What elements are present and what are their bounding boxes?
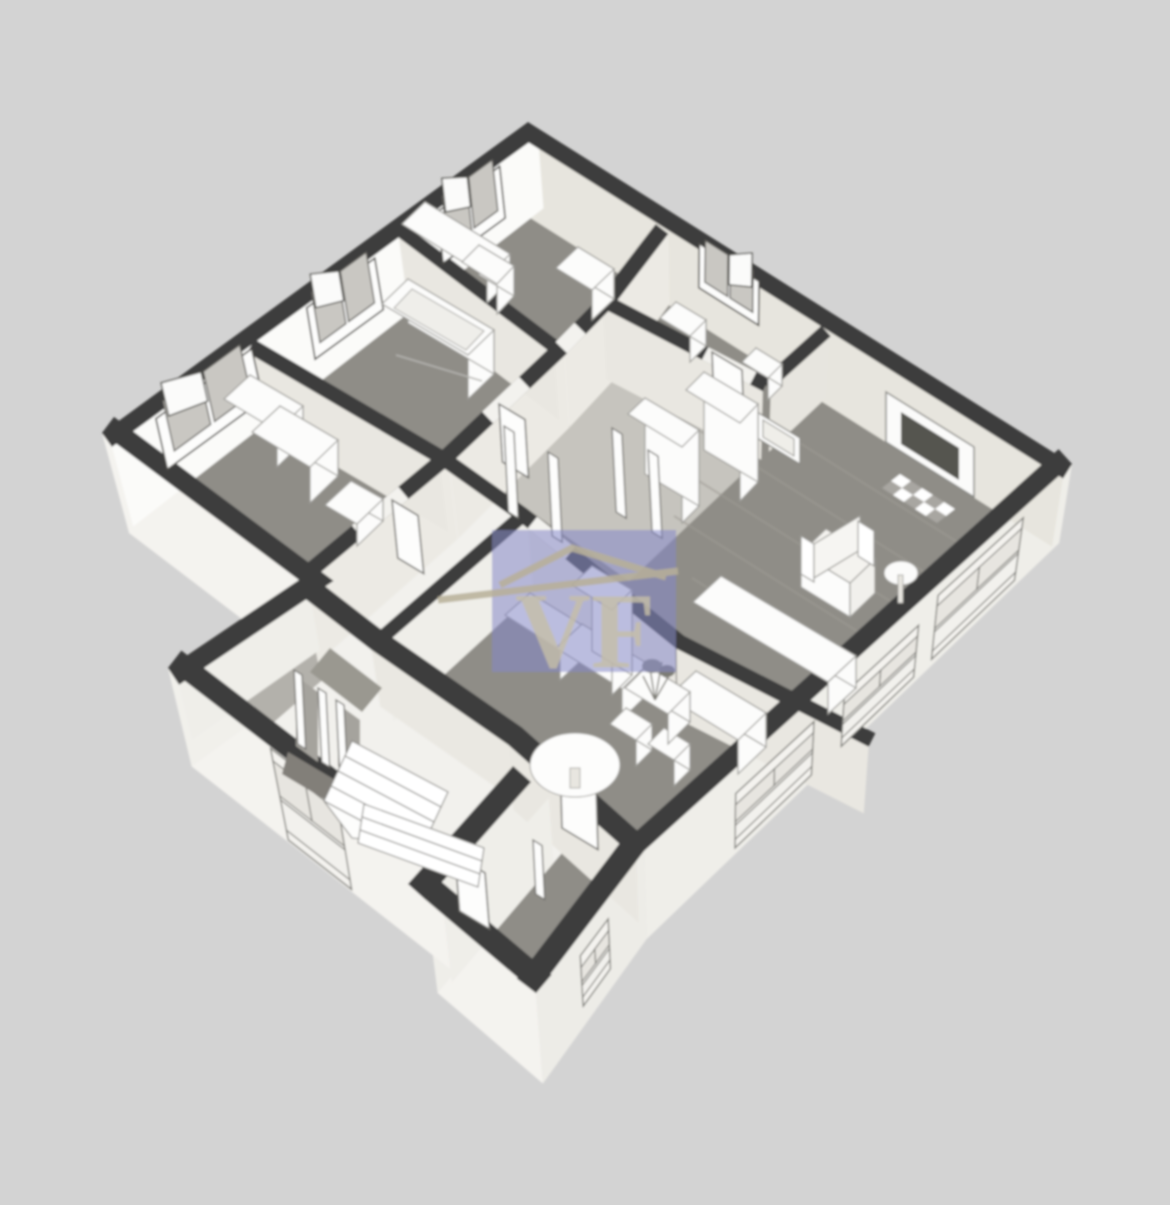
svg-text:VF: VF (515, 572, 655, 691)
